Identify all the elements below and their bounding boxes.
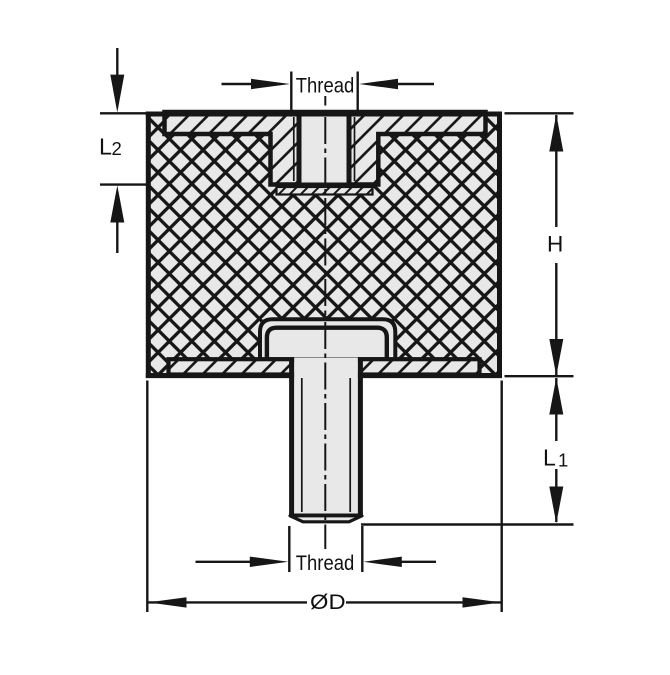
svg-text:2: 2 xyxy=(112,138,122,159)
svg-text:Thread: Thread xyxy=(296,552,355,575)
svg-text:Thread: Thread xyxy=(296,75,355,98)
svg-text:H: H xyxy=(547,232,563,257)
svg-text:L: L xyxy=(543,445,556,471)
svg-text:L: L xyxy=(99,134,112,160)
svg-text:1: 1 xyxy=(558,450,568,471)
svg-text:ØD: ØD xyxy=(310,590,346,614)
